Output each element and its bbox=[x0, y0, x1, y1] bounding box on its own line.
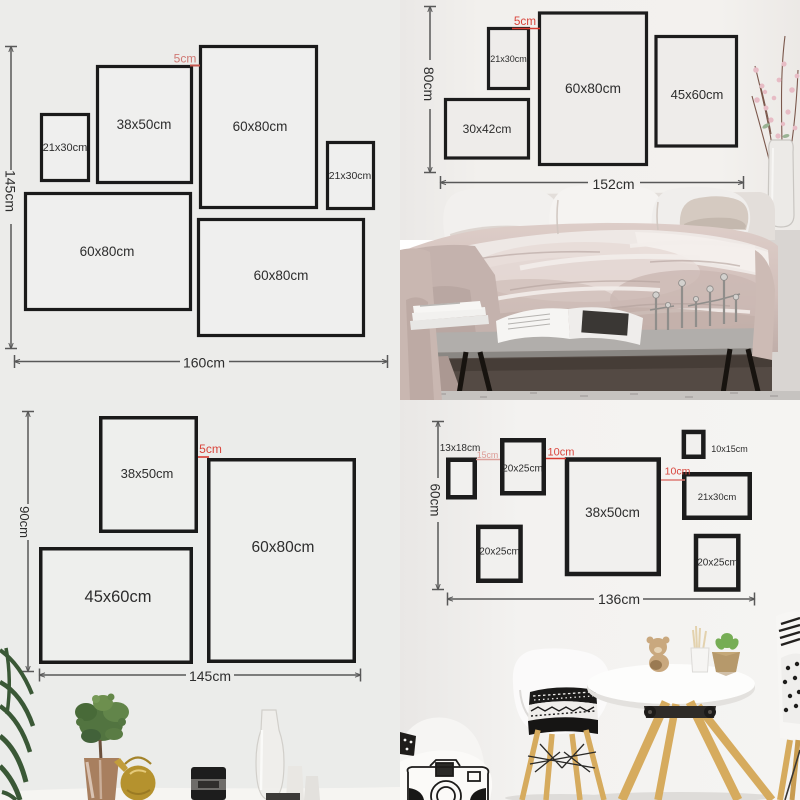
svg-text:90cm: 90cm bbox=[17, 506, 32, 538]
svg-text:80cm: 80cm bbox=[421, 67, 437, 101]
svg-text:13x18cm: 13x18cm bbox=[440, 443, 481, 454]
svg-text:145cm: 145cm bbox=[189, 668, 231, 684]
svg-text:5cm: 5cm bbox=[199, 442, 222, 456]
svg-text:21x30cm: 21x30cm bbox=[490, 54, 527, 64]
svg-text:20x25cm: 20x25cm bbox=[502, 464, 543, 475]
svg-text:20x25cm: 20x25cm bbox=[479, 547, 520, 558]
svg-text:136cm: 136cm bbox=[598, 591, 640, 607]
svg-text:21x30cm: 21x30cm bbox=[43, 142, 88, 154]
svg-text:38x50cm: 38x50cm bbox=[121, 466, 174, 481]
svg-text:5cm: 5cm bbox=[174, 52, 197, 66]
svg-text:60x80cm: 60x80cm bbox=[565, 81, 621, 96]
svg-text:60x80cm: 60x80cm bbox=[254, 268, 309, 283]
svg-text:5cm: 5cm bbox=[514, 14, 536, 28]
svg-text:10cm: 10cm bbox=[665, 466, 691, 478]
svg-text:152cm: 152cm bbox=[592, 176, 634, 192]
svg-text:45x60cm: 45x60cm bbox=[85, 588, 152, 606]
svg-text:21x30cm: 21x30cm bbox=[329, 170, 372, 182]
svg-text:15cm: 15cm bbox=[477, 450, 499, 460]
svg-text:21x30cm: 21x30cm bbox=[698, 492, 737, 503]
svg-text:30x42cm: 30x42cm bbox=[463, 122, 512, 136]
svg-text:45x60cm: 45x60cm bbox=[671, 87, 724, 102]
svg-text:160cm: 160cm bbox=[183, 355, 225, 371]
svg-text:38x50cm: 38x50cm bbox=[585, 505, 640, 520]
svg-text:60x80cm: 60x80cm bbox=[233, 119, 288, 134]
svg-text:60x80cm: 60x80cm bbox=[80, 244, 135, 259]
svg-text:10x15cm: 10x15cm bbox=[711, 444, 748, 454]
svg-text:60x80cm: 60x80cm bbox=[252, 539, 315, 556]
svg-text:38x50cm: 38x50cm bbox=[117, 117, 172, 132]
svg-text:145cm: 145cm bbox=[3, 170, 19, 212]
svg-text:20x25cm: 20x25cm bbox=[697, 558, 738, 569]
svg-text:60cm: 60cm bbox=[428, 483, 443, 516]
svg-text:10cm: 10cm bbox=[548, 447, 575, 459]
